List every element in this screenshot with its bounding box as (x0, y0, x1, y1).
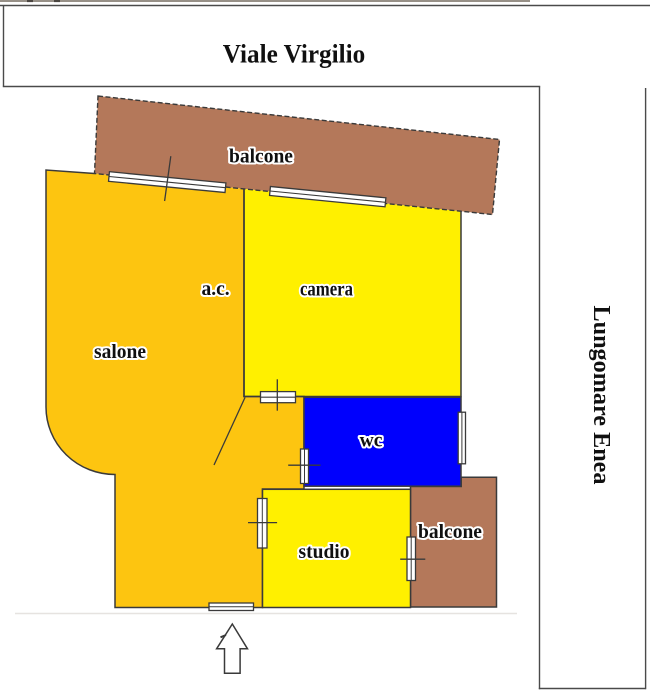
svg-text:Lungomare Enea: Lungomare Enea (588, 306, 615, 485)
svg-text:camera: camera (300, 280, 353, 301)
svg-text:Viale Virgilio: Viale Virgilio (223, 40, 366, 69)
svg-text:wc: wc (360, 431, 383, 452)
svg-text:a.c.: a.c. (202, 279, 230, 300)
svg-text:salone: salone (94, 342, 146, 363)
svg-text:balcone: balcone (229, 147, 293, 168)
svg-text:balcone: balcone (418, 522, 482, 543)
svg-text:studio: studio (299, 542, 350, 563)
